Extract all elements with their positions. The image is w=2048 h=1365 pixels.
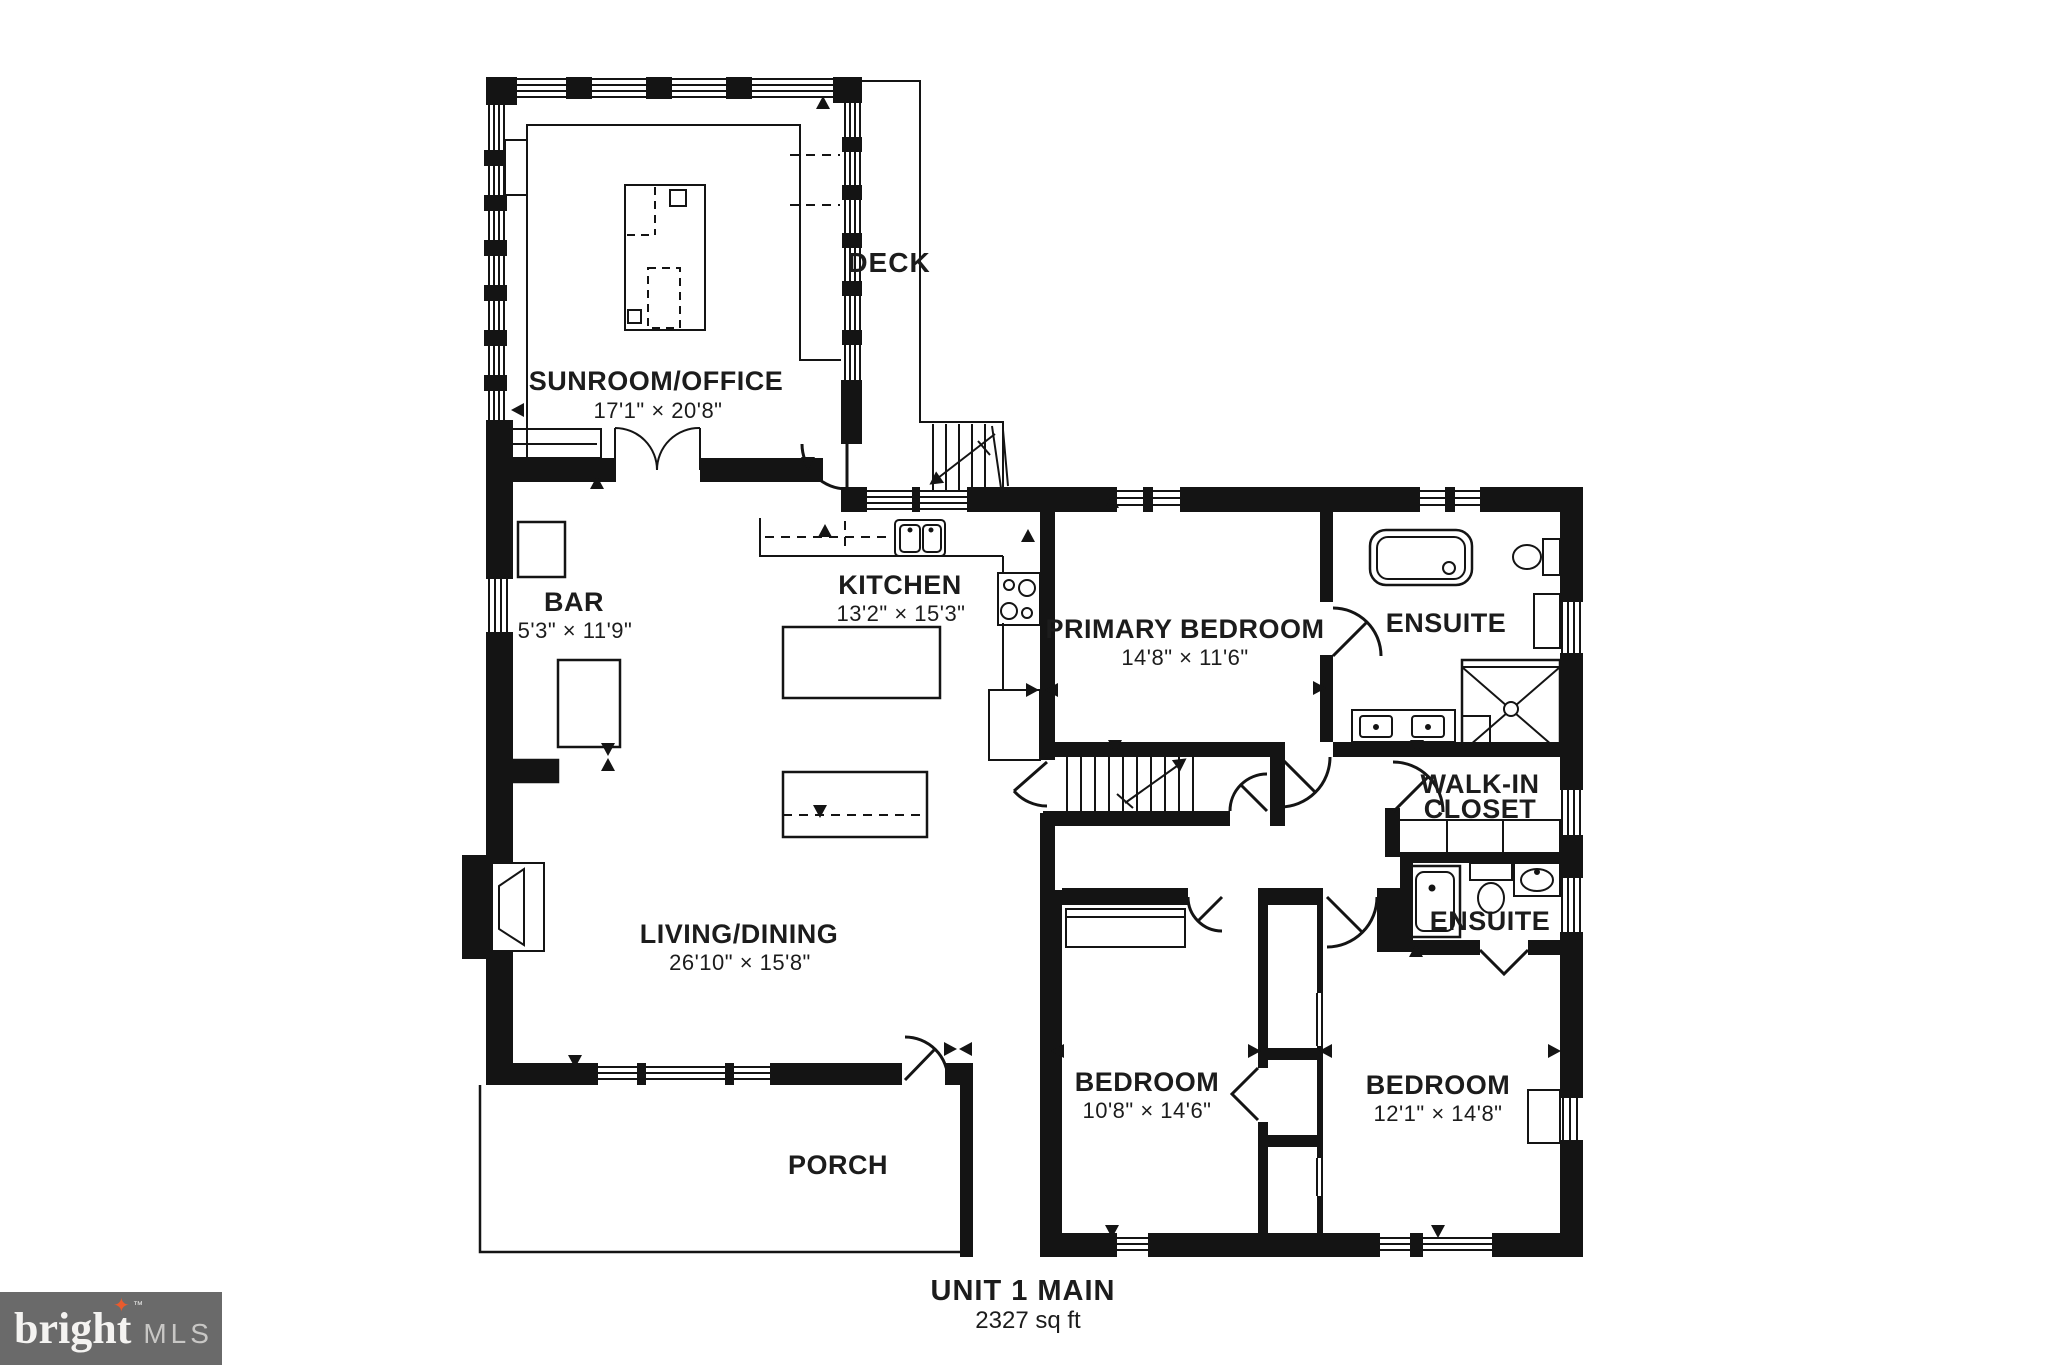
- toilet-icon: [1513, 539, 1560, 575]
- sunroom-label: SUNROOM/OFFICE: [529, 366, 784, 396]
- pantry-closet: [989, 690, 1040, 760]
- walkin-shelves: [1390, 820, 1560, 853]
- bright-mls-logo: bright ✦ ™ MLS: [0, 1292, 222, 1365]
- walkin-label-2: CLOSET: [1424, 794, 1537, 824]
- bar-dims: 5'3" × 11'9": [518, 618, 633, 643]
- fireplace-icon: [492, 863, 544, 951]
- bar-label: BAR: [544, 587, 604, 617]
- interior-stairs: [1067, 757, 1193, 811]
- logo-mls-text: MLS: [143, 1318, 213, 1350]
- stove-icon: [998, 573, 1040, 625]
- sink2-icon: [1514, 863, 1560, 896]
- bar-cabinet: [518, 522, 565, 577]
- double-vanity-icon: [1352, 710, 1455, 742]
- sunroom-dims: 17'1" × 20'8": [593, 398, 722, 423]
- bar-wall-step: [505, 760, 558, 782]
- sunroom-shelf: [505, 140, 527, 195]
- star-icon: ✦: [113, 1293, 130, 1318]
- shower-icon: [1462, 660, 1560, 752]
- porch-label: PORCH: [788, 1150, 888, 1180]
- primary-bedroom-label: PRIMARY BEDROOM: [1045, 614, 1324, 644]
- door-arcs: [615, 428, 1528, 1120]
- bedroom-left-dims: 10'8" × 14'6": [1082, 1098, 1211, 1123]
- bathtub-icon: [1370, 530, 1472, 585]
- living-dining-label: LIVING/DINING: [640, 919, 839, 949]
- bathroom-cabinet: [1534, 594, 1560, 648]
- bar-counter: [558, 660, 620, 747]
- floorplan-drawing: SUNROOM/OFFICE 17'1" × 20'8" DECK BAR 5'…: [0, 0, 2048, 1365]
- dining-island: [783, 772, 927, 837]
- trademark-symbol: ™: [133, 1300, 143, 1311]
- kitchen-label: KITCHEN: [838, 570, 962, 600]
- sunroom-closet: [508, 429, 601, 458]
- room-labels: SUNROOM/OFFICE 17'1" × 20'8" DECK BAR 5'…: [518, 247, 1551, 1334]
- primary-bedroom-dims: 14'8" × 11'6": [1121, 645, 1248, 670]
- ensuite-primary-label: ENSUITE: [1386, 608, 1507, 638]
- bedroom1-closet: [1066, 909, 1185, 947]
- bedroom-left-label: BEDROOM: [1075, 1067, 1220, 1097]
- kitchen-sink-icon: [895, 520, 945, 556]
- kitchen-island: [783, 627, 940, 698]
- ensuite-second-label: ENSUITE: [1430, 906, 1551, 936]
- unit-area: 2327 sq ft: [975, 1307, 1081, 1334]
- living-dining-dims: 26'10" × 15'8": [669, 950, 811, 975]
- deck-stairs: [933, 424, 1008, 490]
- bedroom-right-label: BEDROOM: [1366, 1070, 1511, 1100]
- bedroom-right-dims: 12'1" × 14'8": [1373, 1101, 1502, 1126]
- floorplan-page: SUNROOM/OFFICE 17'1" × 20'8" DECK BAR 5'…: [0, 0, 2048, 1365]
- unit-title: UNIT 1 MAIN: [931, 1275, 1116, 1307]
- desk-icon: [625, 185, 705, 330]
- kitchen-dims: 13'2" × 15'3": [836, 601, 965, 626]
- deck-label: DECK: [847, 247, 930, 278]
- window-seat: [1528, 1090, 1560, 1143]
